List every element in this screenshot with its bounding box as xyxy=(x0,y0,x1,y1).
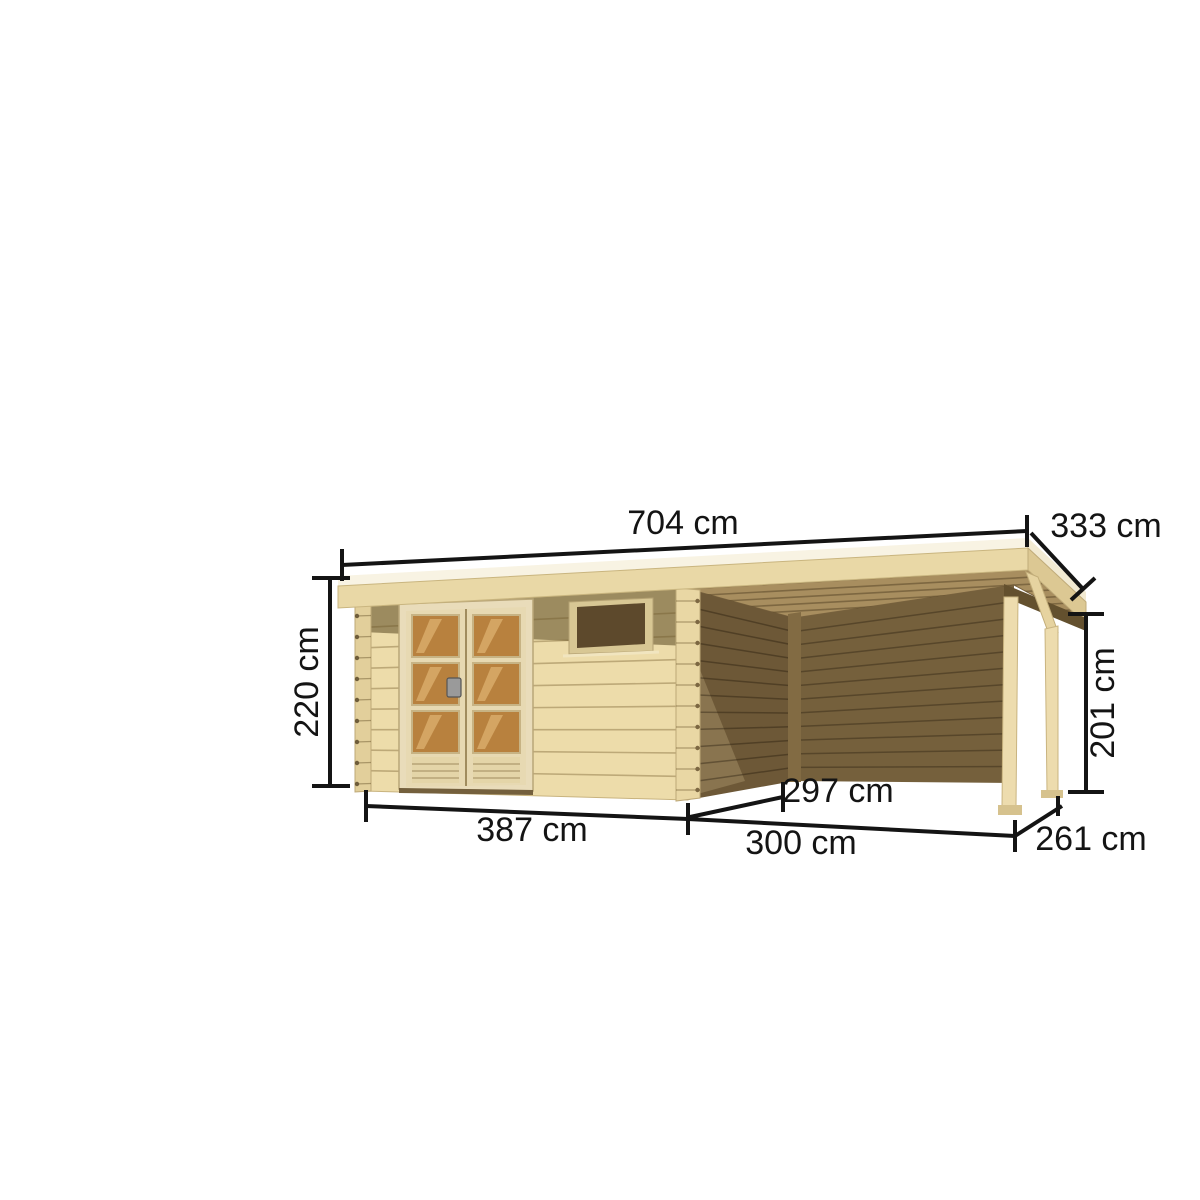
dimension-canopy-depth: 261 cm xyxy=(1015,796,1147,858)
canopy-post-rear xyxy=(1002,597,1018,807)
plank-line xyxy=(688,712,794,713)
log-notch xyxy=(355,761,359,765)
garden-shed-illustration xyxy=(338,538,1092,815)
log-notch xyxy=(695,788,699,792)
post-rear-foot xyxy=(998,805,1022,815)
log-notch xyxy=(355,656,359,660)
window-opening xyxy=(577,603,645,648)
corner-logs-right xyxy=(676,588,700,801)
dim-canopy-width-label: 300 cm xyxy=(745,824,857,862)
log-notch xyxy=(695,767,699,771)
glass-highlight xyxy=(473,757,520,783)
log-notch xyxy=(355,635,359,639)
dim-canopy-inner-depth-line xyxy=(690,797,783,817)
log-notch xyxy=(695,620,699,624)
log-notch xyxy=(695,683,699,687)
dimension-wall-height: 220 cm xyxy=(288,578,350,786)
plank-line xyxy=(794,767,1014,768)
log-notch xyxy=(695,662,699,666)
log-notch xyxy=(695,599,699,603)
dim-roof-width-label: 704 cm xyxy=(627,504,739,542)
dim-wall-height-label: 220 cm xyxy=(288,626,326,738)
log-notch xyxy=(355,614,359,618)
log-notch xyxy=(695,725,699,729)
canopy-post-front xyxy=(1045,626,1058,792)
log-notch xyxy=(355,782,359,786)
dimension-canopy-width: 300 cm xyxy=(688,819,1015,862)
corner-logs-left xyxy=(355,605,371,792)
log-notch xyxy=(695,641,699,645)
dim-shed-width-label: 387 cm xyxy=(476,811,588,849)
glass-highlight xyxy=(412,757,459,783)
product-image: 704 cm 333 cm 220 cm 201 cm 387 cm xyxy=(0,0,1200,1200)
dim-canopy-depth-label: 261 cm xyxy=(1035,820,1147,858)
log-notch xyxy=(355,698,359,702)
door-handle xyxy=(447,678,461,697)
dim-canopy-height-label: 201 cm xyxy=(1084,647,1122,759)
log-notch xyxy=(695,746,699,750)
log-notch xyxy=(355,719,359,723)
canopy-back-wall xyxy=(788,585,1014,783)
log-notch xyxy=(355,677,359,681)
log-notch xyxy=(695,704,699,708)
interior-corner-logs xyxy=(788,612,801,782)
dim-canopy-inner-depth-label: 297 cm xyxy=(782,772,894,810)
dim-roof-depth-label: 333 cm xyxy=(1050,507,1162,545)
shed-dimension-diagram: 704 cm 333 cm 220 cm 201 cm 387 cm xyxy=(0,0,1200,1200)
double-door xyxy=(399,599,533,795)
shed-side-wall xyxy=(688,589,794,800)
log-notch xyxy=(355,740,359,744)
window xyxy=(563,598,659,656)
dimension-canopy-height: 201 cm xyxy=(1068,614,1122,792)
